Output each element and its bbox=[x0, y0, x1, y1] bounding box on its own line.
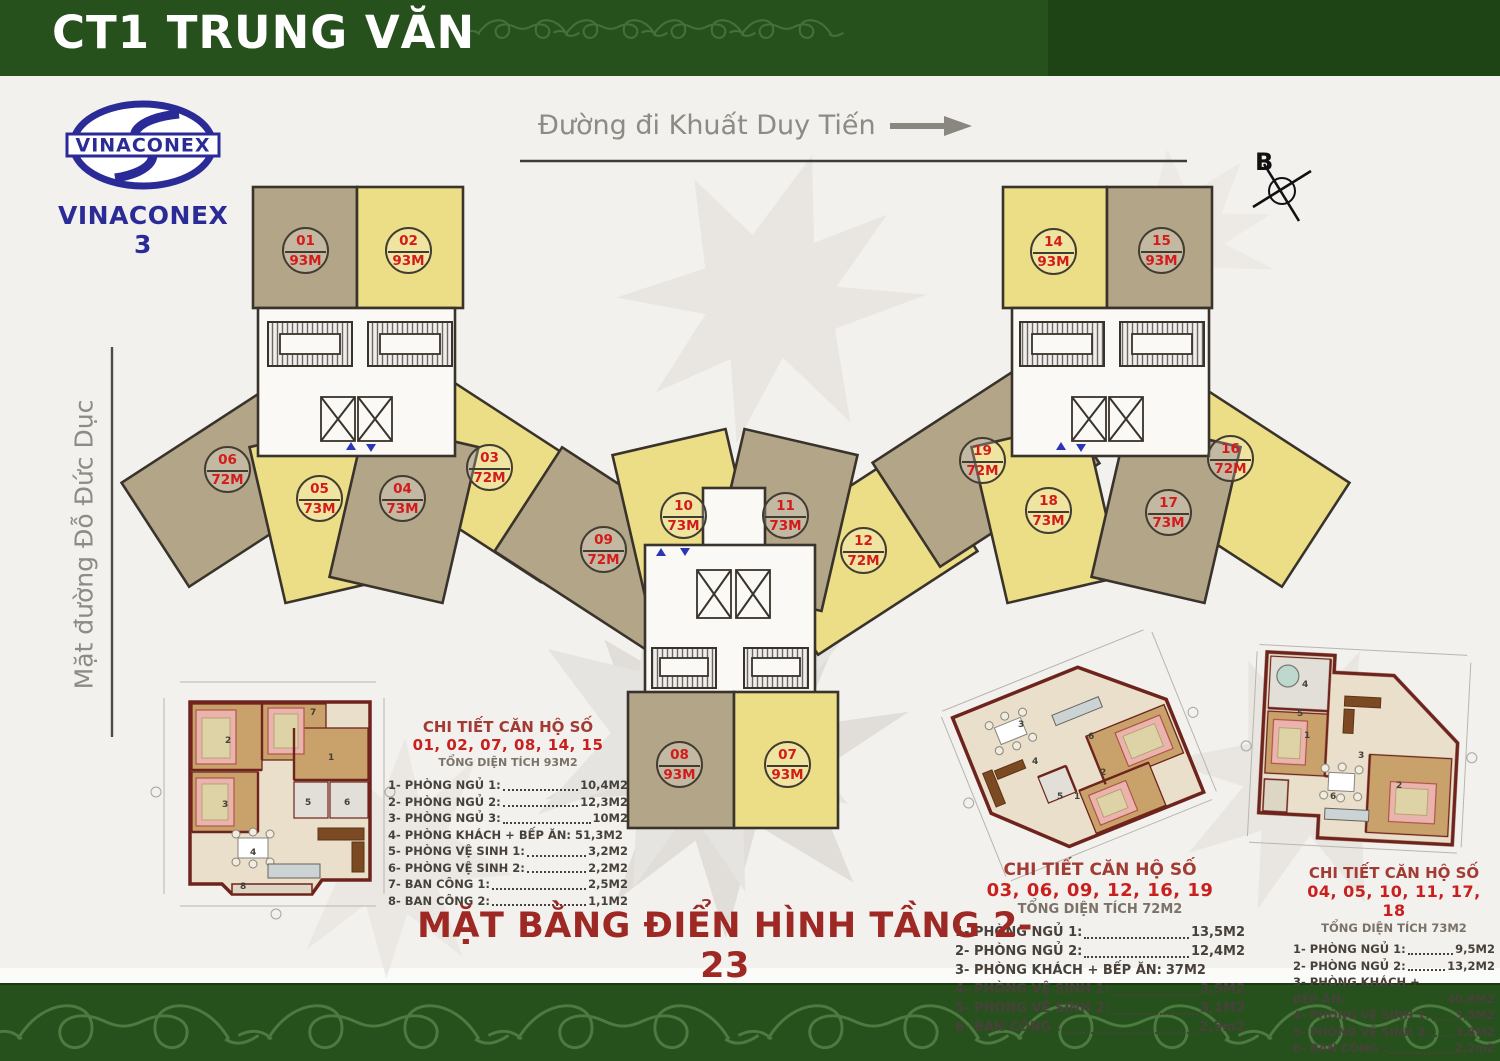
legend-row: 2- PHÒNG NGỦ 2: 12,3M2 bbox=[388, 794, 628, 811]
dotted-leader bbox=[503, 822, 591, 824]
legend-title: CHI TIẾT CĂN HỘ SỐ bbox=[388, 718, 628, 736]
dotted-leader bbox=[1084, 937, 1189, 939]
room-label: 3- PHÒNG KHÁCH + BẾP ĂN: bbox=[1293, 974, 1443, 1007]
room-label: 2- PHÒNG NGỦ 2: bbox=[1293, 958, 1406, 975]
detail-plan-72m2 bbox=[928, 622, 1230, 886]
room-label: 5- PHÒNG VỆ SINH 2: bbox=[1293, 1024, 1430, 1041]
room-label: 4- PHÒNG KHÁCH + BẾP ĂN: bbox=[388, 827, 571, 844]
dotted-leader bbox=[1084, 956, 1189, 958]
room-area: 3,5M2 bbox=[1200, 980, 1245, 999]
dotted-leader bbox=[1063, 1032, 1197, 1034]
dotted-leader bbox=[1408, 953, 1453, 955]
right-wing bbox=[873, 187, 1350, 603]
room-area: 10,4M2 bbox=[580, 777, 628, 794]
dotted-leader bbox=[1432, 1019, 1453, 1021]
room-label: 3- PHÒNG NGỦ 3: bbox=[388, 810, 501, 827]
room-area: 13,2M2 bbox=[1447, 958, 1495, 975]
vinaconex-globe-icon: VINACONEX bbox=[63, 100, 223, 195]
page-title: CT1 TRUNG VĂN bbox=[52, 6, 475, 59]
room-area: 13,5M2 bbox=[1191, 923, 1245, 942]
street-name: Đường đi Khuất Duy Tiến bbox=[538, 110, 876, 141]
room-label: 6- PHÒNG VỆ SINH 2: bbox=[388, 860, 525, 877]
legend-row: 3- PHÒNG NGỦ 3: 10M2 bbox=[388, 810, 628, 827]
room-area: 2,2M2 bbox=[588, 860, 628, 877]
legend-title: CHI TIẾT CĂN HỘ SỐ bbox=[1293, 864, 1495, 882]
room-label: 6- BAN CÔNG : bbox=[955, 1018, 1061, 1037]
room-label: 1- PHÒNG NGỦ 1: bbox=[1293, 941, 1406, 958]
room-label: 5- PHÒNG VỆ SINH 1: bbox=[388, 843, 525, 860]
legend-unit-list: 03, 06, 09, 12, 16, 19 bbox=[955, 880, 1245, 901]
room-area: 3,1M2 bbox=[1200, 999, 1245, 1018]
street-label-left: Mặt đường Đỗ Đức Dục bbox=[70, 345, 99, 745]
room-area: 10M2 bbox=[593, 810, 628, 827]
dotted-leader bbox=[503, 789, 578, 791]
legend-row: 1- PHÒNG NGỦ 1: 9,5M2 bbox=[1293, 941, 1495, 958]
room-area: 9,5M2 bbox=[1455, 941, 1495, 958]
legend-row: 5- PHÒNG VỆ SINH 2: 3,1M2 bbox=[955, 999, 1245, 1018]
legend-row: 6- BAN CÔNG : 2,5m2 bbox=[955, 1018, 1245, 1037]
legend-unit-list: 01, 02, 07, 08, 14, 15 bbox=[388, 736, 628, 754]
legend-row: 5- PHÒNG VỆ SINH 2: 3,8M2 bbox=[1293, 1024, 1495, 1041]
street-arrow-icon bbox=[890, 116, 972, 136]
room-area: 12,4M2 bbox=[1191, 942, 1245, 961]
legend-row: 1- PHÒNG NGỦ 1: 10,4M2 bbox=[388, 777, 628, 794]
vinaconex-logo: VINACONEX VINACONEX 3 bbox=[58, 100, 228, 259]
top-banner: CT1 TRUNG VĂN bbox=[0, 0, 1500, 76]
dotted-leader bbox=[492, 888, 586, 890]
bottom-banner bbox=[0, 983, 1500, 1061]
legend-unit-list: 04, 05, 10, 11, 17, 18 bbox=[1293, 882, 1495, 920]
svg-text:B: B bbox=[1255, 148, 1273, 176]
dotted-leader bbox=[1408, 969, 1445, 971]
dotted-leader bbox=[1432, 1035, 1453, 1037]
room-label: 2- PHÒNG NGỦ 2: bbox=[388, 794, 501, 811]
banner-shade bbox=[1048, 0, 1500, 76]
room-area: 2,5M2 bbox=[588, 876, 628, 893]
room-label: 6- BAN CÔNG : bbox=[1293, 1040, 1387, 1057]
street-label-top: Đường đi Khuất Duy Tiến bbox=[538, 110, 972, 141]
compass-icon: B bbox=[1253, 148, 1311, 221]
legend-items: 1- PHÒNG NGỦ 1: 10,4M2 2- PHÒNG NGỦ 2: 1… bbox=[388, 777, 628, 909]
room-area: 3,5M2 bbox=[1455, 1007, 1495, 1024]
room-label: 1- PHÒNG NGỦ 1: bbox=[388, 777, 501, 794]
room-area: 51,3M2 bbox=[575, 827, 623, 844]
room-area: 3,8M2 bbox=[1455, 1024, 1495, 1041]
room-area: 3,2M2 bbox=[588, 843, 628, 860]
plan-title: MẶT BẰNG ĐIỂN HÌNH TẦNG 2-23 bbox=[400, 906, 1050, 986]
legend-items: 1- PHÒNG NGỦ 1: 9,5M2 2- PHÒNG NGỦ 2: 13… bbox=[1293, 941, 1495, 1057]
dotted-leader bbox=[503, 805, 578, 807]
room-label: 5- PHÒNG VỆ SINH 2: bbox=[955, 999, 1110, 1018]
legend-total-area: TỔNG DIỆN TÍCH 93M2 bbox=[388, 756, 628, 769]
dotted-leader bbox=[1112, 1013, 1198, 1015]
svg-text:VINACONEX: VINACONEX bbox=[75, 135, 210, 157]
legend-row: 6- PHÒNG VỆ SINH 2: 2,2M2 bbox=[388, 860, 628, 877]
legend-total-area: TỔNG DIỆN TÍCH 73M2 bbox=[1293, 921, 1495, 935]
banner-swirl-ornament bbox=[0, 985, 1500, 1061]
dotted-leader bbox=[1112, 994, 1198, 996]
dotted-leader bbox=[527, 871, 586, 873]
legend-row: 4- PHÒNG KHÁCH + BẾP ĂN: 51,3M2 bbox=[388, 827, 628, 844]
legend-row: 4- PHÒNG VỆ SINH 1: 3,5M2 bbox=[1293, 1007, 1495, 1024]
legend-row: 6- BAN CÔNG : 2,2m2 bbox=[1293, 1040, 1495, 1057]
room-area: 2,2m2 bbox=[1455, 1040, 1495, 1057]
legend-93m2: CHI TIẾT CĂN HỘ SỐ 01, 02, 07, 08, 14, 1… bbox=[388, 718, 628, 909]
vinaconex-3-label: VINACONEX 3 bbox=[58, 201, 228, 259]
room-area: 40,8M2 bbox=[1447, 991, 1495, 1008]
legend-row: 3- PHÒNG KHÁCH + BẾP ĂN: 40,8M2 bbox=[1293, 974, 1495, 1007]
room-label: 7- BAN CÔNG 1: bbox=[388, 876, 490, 893]
room-area: 2,5m2 bbox=[1199, 1018, 1245, 1037]
dotted-leader bbox=[527, 855, 586, 857]
legend-row: 7- BAN CÔNG 1: 2,5M2 bbox=[388, 876, 628, 893]
room-label: 4- PHÒNG VỆ SINH 1: bbox=[1293, 1007, 1430, 1024]
room-area: 37M2 bbox=[1166, 961, 1206, 980]
legend-row: 5- PHÒNG VỆ SINH 1: 3,2M2 bbox=[388, 843, 628, 860]
legend-row: 2- PHÒNG NGỦ 2: 13,2M2 bbox=[1293, 958, 1495, 975]
dotted-leader bbox=[1389, 1052, 1453, 1054]
legend-title: CHI TIẾT CĂN HỘ SỐ bbox=[955, 860, 1245, 880]
room-area: 12,3M2 bbox=[580, 794, 628, 811]
legend-73m2: CHI TIẾT CĂN HỘ SỐ 04, 05, 10, 11, 17, 1… bbox=[1293, 864, 1495, 1057]
floorplan-poster: B bbox=[0, 0, 1500, 1061]
